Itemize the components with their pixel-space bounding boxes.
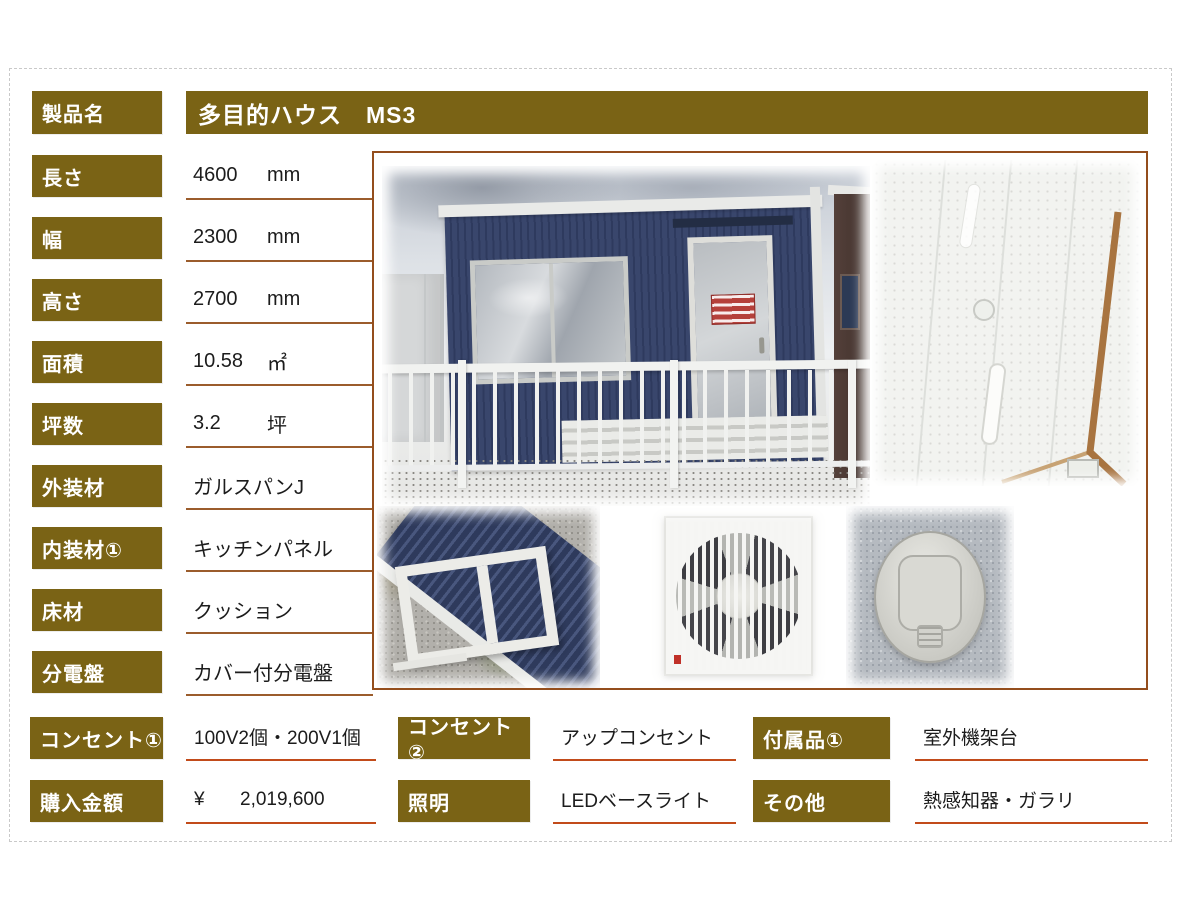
- spec-value-number: カバー付分電盤: [193, 657, 333, 686]
- detail-value-text: アップコンセント: [561, 723, 713, 750]
- spec-label-area: 面積: [32, 341, 162, 383]
- detail-label-text: その他: [763, 787, 826, 816]
- photo-collage-frame: [372, 151, 1148, 690]
- spec-value-unit: mm: [267, 288, 300, 311]
- ceiling-interior-photo: [872, 160, 1140, 486]
- spec-value-floor: クッション: [186, 589, 373, 634]
- spec-label-text: 床材: [42, 596, 84, 625]
- spec-label-text: 坪数: [42, 410, 84, 439]
- detail-value-text: 100V2個・200V1個: [194, 723, 361, 750]
- railing-post: [670, 360, 678, 488]
- spec-value-number: 10.58: [193, 350, 267, 373]
- detail-label-text: 購入金額: [40, 787, 124, 816]
- spec-label-exterior: 外装材: [32, 465, 162, 507]
- spec-label-floor: 床材: [32, 589, 162, 631]
- product-name-value: 多目的ハウス MS3: [198, 96, 416, 130]
- spec-label-interior1: 内装材①: [32, 527, 162, 569]
- detail-value-accessory1: 室外機架台: [915, 717, 1148, 761]
- detail-value-outlet2: アップコンセント: [553, 717, 736, 761]
- detail-label-text: 付属品①: [763, 724, 844, 753]
- spec-value-tsubo: 3.2坪: [186, 403, 373, 448]
- spec-label-tsubo: 坪数: [32, 403, 162, 445]
- spec-value-height: 2700mm: [186, 279, 373, 324]
- detail-value-text: 2,019,600: [240, 789, 325, 811]
- spec-label-text: 外装材: [42, 472, 105, 501]
- spec-value-area: 10.58㎡: [186, 341, 373, 386]
- floor-outlet-lid: [898, 555, 962, 631]
- spec-value-number: ガルスパンJ: [193, 471, 304, 500]
- spec-label-length: 長さ: [32, 155, 162, 197]
- detail-value-text: 室外機架台: [923, 723, 1018, 750]
- spec-value-exterior: ガルスパンJ: [186, 465, 373, 510]
- detail-label-lighting: 照明: [398, 780, 530, 822]
- fan-red-mark: [674, 655, 681, 664]
- product-name-label-text: 製品名: [42, 98, 105, 127]
- spec-value-unit: 坪: [267, 409, 287, 438]
- spec-label-text: 長さ: [42, 162, 84, 191]
- spec-value-number: 3.2: [193, 412, 267, 435]
- detail-label-other: その他: [753, 780, 890, 822]
- detail-label-price: 購入金額: [30, 780, 163, 822]
- outdoor-rack-photo: [377, 506, 600, 688]
- floor-outlet-photo: [846, 506, 1014, 688]
- ventilation-fan-photo: [650, 506, 827, 688]
- rack-frame: [395, 546, 559, 666]
- spec-value-number: 2300: [193, 226, 267, 249]
- main-exterior-photo: [382, 166, 870, 506]
- spec-sheet: 製品名 多目的ハウス MS3 長さ 4600mm 幅 2300mm 高さ 270…: [0, 0, 1180, 912]
- detail-label-text: コンセント②: [408, 711, 530, 765]
- spec-value-number: 2700: [193, 288, 267, 311]
- spec-label-text: 幅: [42, 224, 63, 253]
- fan-grille-slats: [670, 522, 807, 670]
- floor-outlet-body: [874, 531, 986, 663]
- spec-value-width: 2300mm: [186, 217, 373, 262]
- spec-label-panelboard: 分電盤: [32, 651, 162, 693]
- spec-label-text: 面積: [42, 348, 84, 377]
- spec-value-unit: mm: [267, 164, 300, 187]
- railing-post: [848, 360, 856, 488]
- spec-label-text: 分電盤: [42, 658, 105, 687]
- ceiling-trim-graphic: [872, 160, 1140, 486]
- detail-value-text: 熱感知器・ガラリ: [923, 786, 1075, 813]
- spec-label-height: 高さ: [32, 279, 162, 321]
- door-louver-vent: [673, 216, 793, 228]
- product-name-bar: 多目的ハウス MS3: [186, 91, 1148, 134]
- spec-value-length: 4600mm: [186, 155, 373, 200]
- currency-symbol: ¥: [194, 789, 240, 811]
- detail-label-accessory1: 付属品①: [753, 717, 890, 759]
- floor-outlet-latch: [917, 625, 943, 648]
- spec-value-number: 4600: [193, 164, 267, 187]
- spec-value-unit: mm: [267, 226, 300, 249]
- detail-label-text: コンセント①: [40, 724, 163, 753]
- spec-value-interior1: キッチンパネル: [186, 527, 373, 572]
- detail-value-outlet1: 100V2個・200V1個: [186, 717, 376, 761]
- spec-value-panelboard: カバー付分電盤: [186, 651, 373, 696]
- detail-value-lighting: LEDベースライト: [553, 780, 736, 824]
- spec-value-number: クッション: [193, 595, 293, 624]
- spec-value-unit: ㎡: [267, 347, 287, 376]
- detail-label-outlet2: コンセント②: [398, 717, 530, 759]
- detail-value-price: ¥2,019,600: [186, 780, 376, 824]
- house-roof-fascia: [438, 195, 822, 218]
- door-handle: [759, 337, 764, 353]
- detail-value-text: LEDベースライト: [561, 786, 711, 813]
- railing-post: [458, 360, 466, 488]
- fan-frame: [664, 516, 813, 676]
- neighbor-unit-window: [840, 274, 860, 330]
- spec-value-number: キッチンパネル: [193, 533, 333, 562]
- spec-label-width: 幅: [32, 217, 162, 259]
- product-name-label: 製品名: [32, 91, 162, 134]
- detail-label-text: 照明: [408, 787, 450, 816]
- detail-value-other: 熱感知器・ガラリ: [915, 780, 1148, 824]
- door-sign: [711, 294, 756, 325]
- spec-label-text: 高さ: [42, 286, 84, 315]
- spec-label-text: 内装材①: [42, 534, 123, 563]
- detail-label-outlet1: コンセント①: [30, 717, 163, 759]
